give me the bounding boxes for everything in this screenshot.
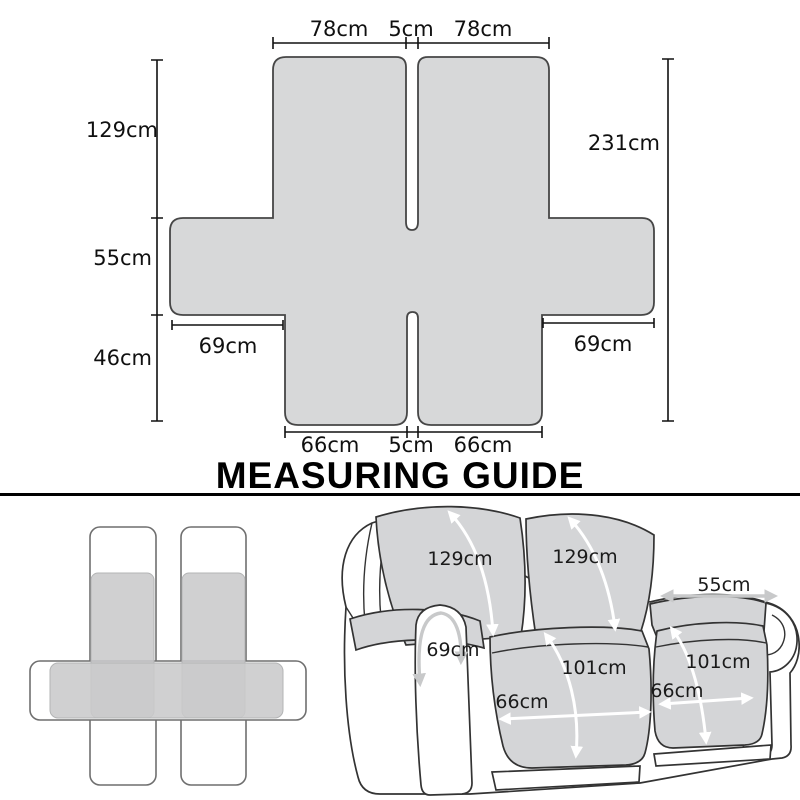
sofa-label-seat-depth-right: 101cm xyxy=(685,651,750,673)
sofa-label-armrest-front: 69cm xyxy=(426,639,479,661)
dim-label-top-gap: 5cm xyxy=(388,17,433,41)
sofa-label-seat-width-left: 66cm xyxy=(495,691,548,713)
measuring-guide-image: 78cm 5cm 78cm 129cm 55cm 46cm 231cm 69cm… xyxy=(0,0,800,800)
dimension-arm-left: 69cm xyxy=(172,320,283,358)
dimension-left: 129cm 55cm 46cm xyxy=(86,60,163,421)
dim-label-arm-left: 69cm xyxy=(199,334,258,358)
dimension-top: 78cm 5cm 78cm xyxy=(273,17,549,49)
sofa-label-seat-width-right: 66cm xyxy=(650,680,703,702)
sofa-label-back-right: 129cm xyxy=(552,546,617,568)
cover-flat-pattern-shape xyxy=(170,57,654,425)
dim-label-arm-right: 69cm xyxy=(574,332,633,356)
dim-label-front-drop: 46cm xyxy=(93,346,152,370)
schematic-cover-band xyxy=(50,663,283,718)
dimension-arm-right: 69cm xyxy=(543,318,654,356)
dim-label-bottom-left: 66cm xyxy=(301,433,360,455)
dim-label-bottom-gap: 5cm xyxy=(388,433,433,455)
dim-label-top-left: 78cm xyxy=(310,17,369,41)
dim-label-top-right: 78cm xyxy=(454,17,513,41)
placement-schematic xyxy=(0,500,330,800)
sofa-illustration: 129cm 129cm 55cm 69cm 101cm 101cm 66cm 6… xyxy=(320,495,800,800)
sofa-label-seat-depth-left: 101cm xyxy=(561,657,626,679)
page-title: MEASURING GUIDE xyxy=(0,458,800,494)
sofa-label-back-left: 129cm xyxy=(427,548,492,570)
dim-label-bottom-right: 66cm xyxy=(454,433,513,455)
dimension-bottom: 66cm 5cm 66cm xyxy=(285,426,542,455)
dim-label-middle-depth: 55cm xyxy=(93,246,152,270)
dim-label-total-height: 231cm xyxy=(588,131,660,155)
dim-label-back-height: 129cm xyxy=(86,118,158,142)
sofa-label-armrest-top: 55cm xyxy=(697,574,750,596)
flat-pattern-diagram: 78cm 5cm 78cm 129cm 55cm 46cm 231cm 69cm… xyxy=(0,0,800,455)
backrest-cover-right xyxy=(526,514,654,637)
